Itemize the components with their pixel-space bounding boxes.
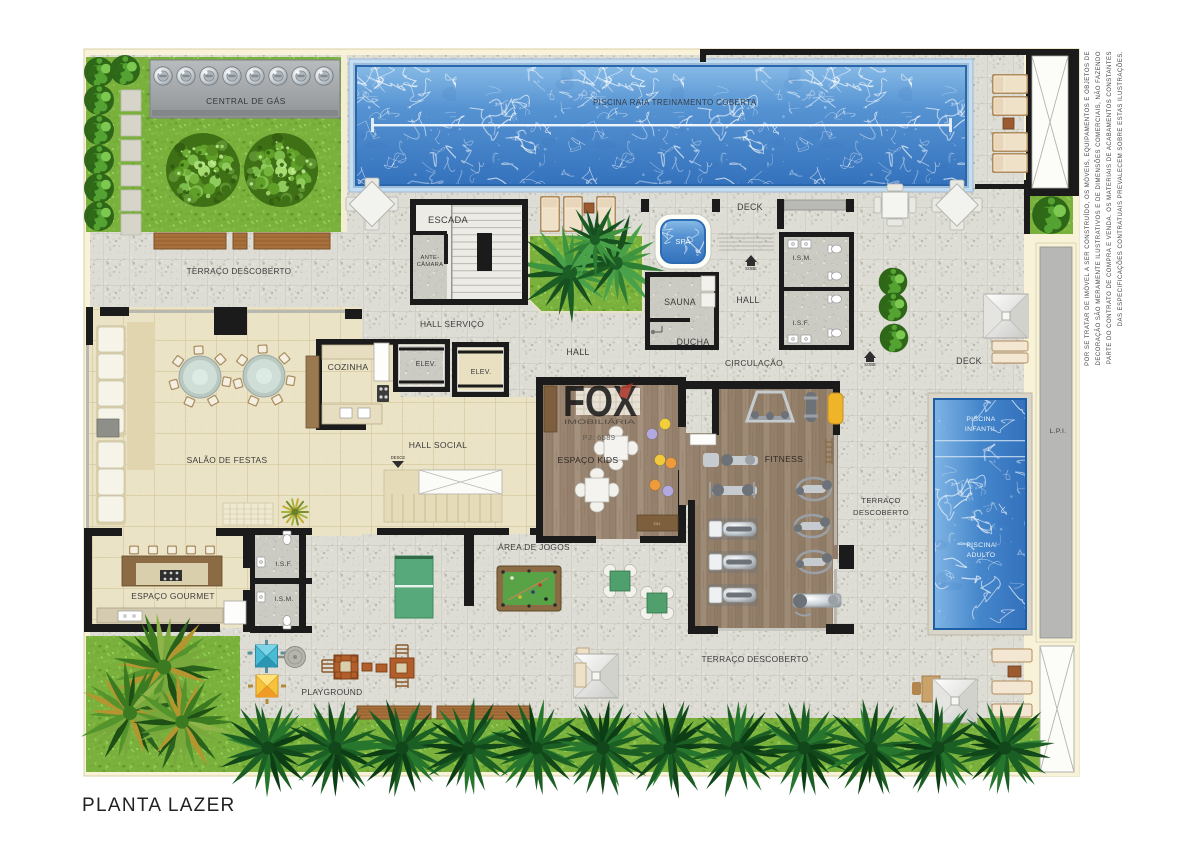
svg-text:HALL SERVIÇO: HALL SERVIÇO — [420, 319, 484, 329]
svg-text:CÂMARA: CÂMARA — [417, 261, 444, 268]
svg-text:ESPAÇO KIDS: ESPAÇO KIDS — [558, 455, 619, 465]
svg-text:PARTE DO CONTRATO DE COMPRA E: PARTE DO CONTRATO DE COMPRA E VENDA. OS … — [1107, 51, 1113, 364]
svg-text:ÁREA DE JOGOS: ÁREA DE JOGOS — [498, 542, 570, 552]
svg-text:DUCHA: DUCHA — [677, 337, 710, 347]
svg-text:I.S.F.: I.S.F. — [793, 320, 810, 327]
svg-text:PJ: 6589: PJ: 6589 — [583, 433, 616, 442]
svg-text:L.P.I.: L.P.I. — [1050, 428, 1067, 435]
svg-text:CIRCULAÇÃO: CIRCULAÇÃO — [725, 358, 783, 368]
svg-text:TERRAÇO DESCOBERTO: TERRAÇO DESCOBERTO — [701, 654, 808, 664]
svg-text:DESCOBERTO: DESCOBERTO — [853, 508, 909, 517]
svg-text:ESCADA: ESCADA — [428, 215, 469, 225]
svg-text:SAUNA: SAUNA — [664, 297, 696, 307]
svg-text:DAS ESPECIFICAÇÕES CONTRATUAIS: DAS ESPECIFICAÇÕES CONTRATUAIS PREVALECE… — [1117, 51, 1124, 326]
svg-text:PISCINA: PISCINA — [966, 542, 995, 549]
svg-text:HALL: HALL — [566, 347, 589, 357]
svg-text:I.S.M.: I.S.M. — [792, 255, 811, 262]
svg-text:HALL: HALL — [736, 295, 759, 305]
svg-text:TERRAÇO DESCOBERTO: TERRAÇO DESCOBERTO — [187, 267, 292, 276]
svg-text:DECK: DECK — [956, 356, 982, 366]
svg-text:POR SE TRATAR DE IMÓVEL A SER: POR SE TRATAR DE IMÓVEL A SER CONSTRUÍDO… — [1084, 51, 1091, 366]
svg-text:ELEV.: ELEV. — [471, 369, 492, 376]
svg-text:ESPAÇO GOURMET: ESPAÇO GOURMET — [131, 591, 215, 601]
svg-text:OI-I: OI-I — [654, 521, 661, 526]
svg-text:I.S.M.: I.S.M. — [274, 596, 293, 603]
svg-text:HALL SOCIAL: HALL SOCIAL — [409, 440, 467, 450]
svg-text:DECK: DECK — [737, 202, 763, 212]
svg-text:ANTE-: ANTE- — [421, 255, 440, 261]
svg-text:INFANTIL: INFANTIL — [965, 426, 997, 433]
svg-text:SOBE: SOBE — [745, 266, 757, 271]
svg-text:I.S.F.: I.S.F. — [276, 561, 293, 568]
svg-text:ELEV.: ELEV. — [416, 361, 437, 368]
svg-text:PISCINA: PISCINA — [966, 416, 995, 423]
svg-text:IMOBILIÁRIA: IMOBILIÁRIA — [564, 417, 636, 426]
svg-text:CENTRAL DE GÁS: CENTRAL DE GÁS — [206, 96, 286, 106]
svg-text:PISCINA RAIA TREINAMENTO COBER: PISCINA RAIA TREINAMENTO COBERTA — [593, 98, 757, 107]
svg-text:SOBE: SOBE — [864, 362, 876, 367]
svg-text:ADULTO: ADULTO — [967, 552, 996, 559]
svg-text:SALÃO DE FESTAS: SALÃO DE FESTAS — [187, 455, 268, 465]
svg-text:TERRAÇO: TERRAÇO — [861, 496, 900, 505]
svg-text:SPA: SPA — [675, 237, 690, 246]
svg-text:DECORAÇÃO SÃO MERAMENTE ILUSTR: DECORAÇÃO SÃO MERAMENTE ILUSTRATIVOS E D… — [1095, 51, 1102, 365]
svg-text:DESCE: DESCE — [391, 455, 406, 460]
svg-text:PLANTA LAZER: PLANTA LAZER — [82, 795, 236, 816]
svg-text:FITNESS: FITNESS — [765, 454, 803, 464]
svg-text:PLAYGROUND: PLAYGROUND — [301, 687, 362, 697]
svg-text:COZINHA: COZINHA — [328, 362, 369, 372]
